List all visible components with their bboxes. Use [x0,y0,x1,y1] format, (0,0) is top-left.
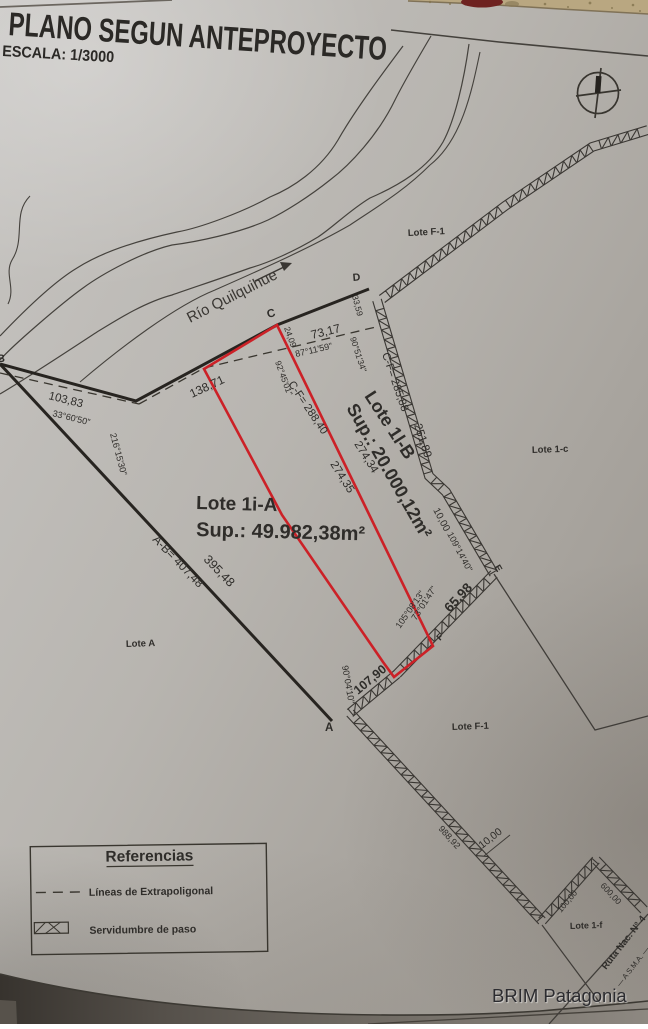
svg-text:87°11'59": 87°11'59" [294,341,333,359]
svg-text:Líneas de Extrapoligonal: Líneas de Extrapoligonal [89,885,214,899]
svg-text:24,09: 24,09 [282,325,299,349]
svg-text:Lote F-1: Lote F-1 [452,721,490,733]
svg-text:10,00: 10,00 [476,826,504,852]
svg-text:Servidumbre de paso: Servidumbre de paso [89,923,196,936]
svg-text:109°14'40": 109°14'40" [445,530,474,573]
svg-text:A-B= 407,48: A-B= 407,48 [150,532,207,590]
svg-text:Referencias: Referencias [105,847,193,865]
svg-text:600,00: 600,00 [599,881,624,907]
svg-text:Sup.: 49.982,38m²: Sup.: 49.982,38m² [196,519,366,545]
svg-text:90°51'34": 90°51'34" [348,336,369,374]
svg-text:216°15'30": 216°15'30" [108,432,129,477]
svg-text:Lote 1-c: Lote 1-c [532,444,569,456]
svg-text:Lote 1-f: Lote 1-f [570,920,604,931]
svg-text:D: D [352,271,361,284]
svg-text:Lote 1i-A: Lote 1i-A [196,493,278,516]
svg-text:Lote F-1: Lote F-1 [408,226,446,239]
svg-text:Lote A: Lote A [126,638,156,650]
svg-text:103,83: 103,83 [47,390,84,410]
svg-text:92°45'01": 92°45'01" [273,359,295,397]
svg-text:33,59: 33,59 [350,294,365,317]
svg-text:C: C [266,307,277,321]
svg-text:90°04'10": 90°04'10" [340,665,357,705]
svg-text:BRIM Patagonia: BRIM Patagonia [492,985,627,1006]
svg-text:B: B [0,353,5,365]
svg-text:A: A [325,722,333,734]
